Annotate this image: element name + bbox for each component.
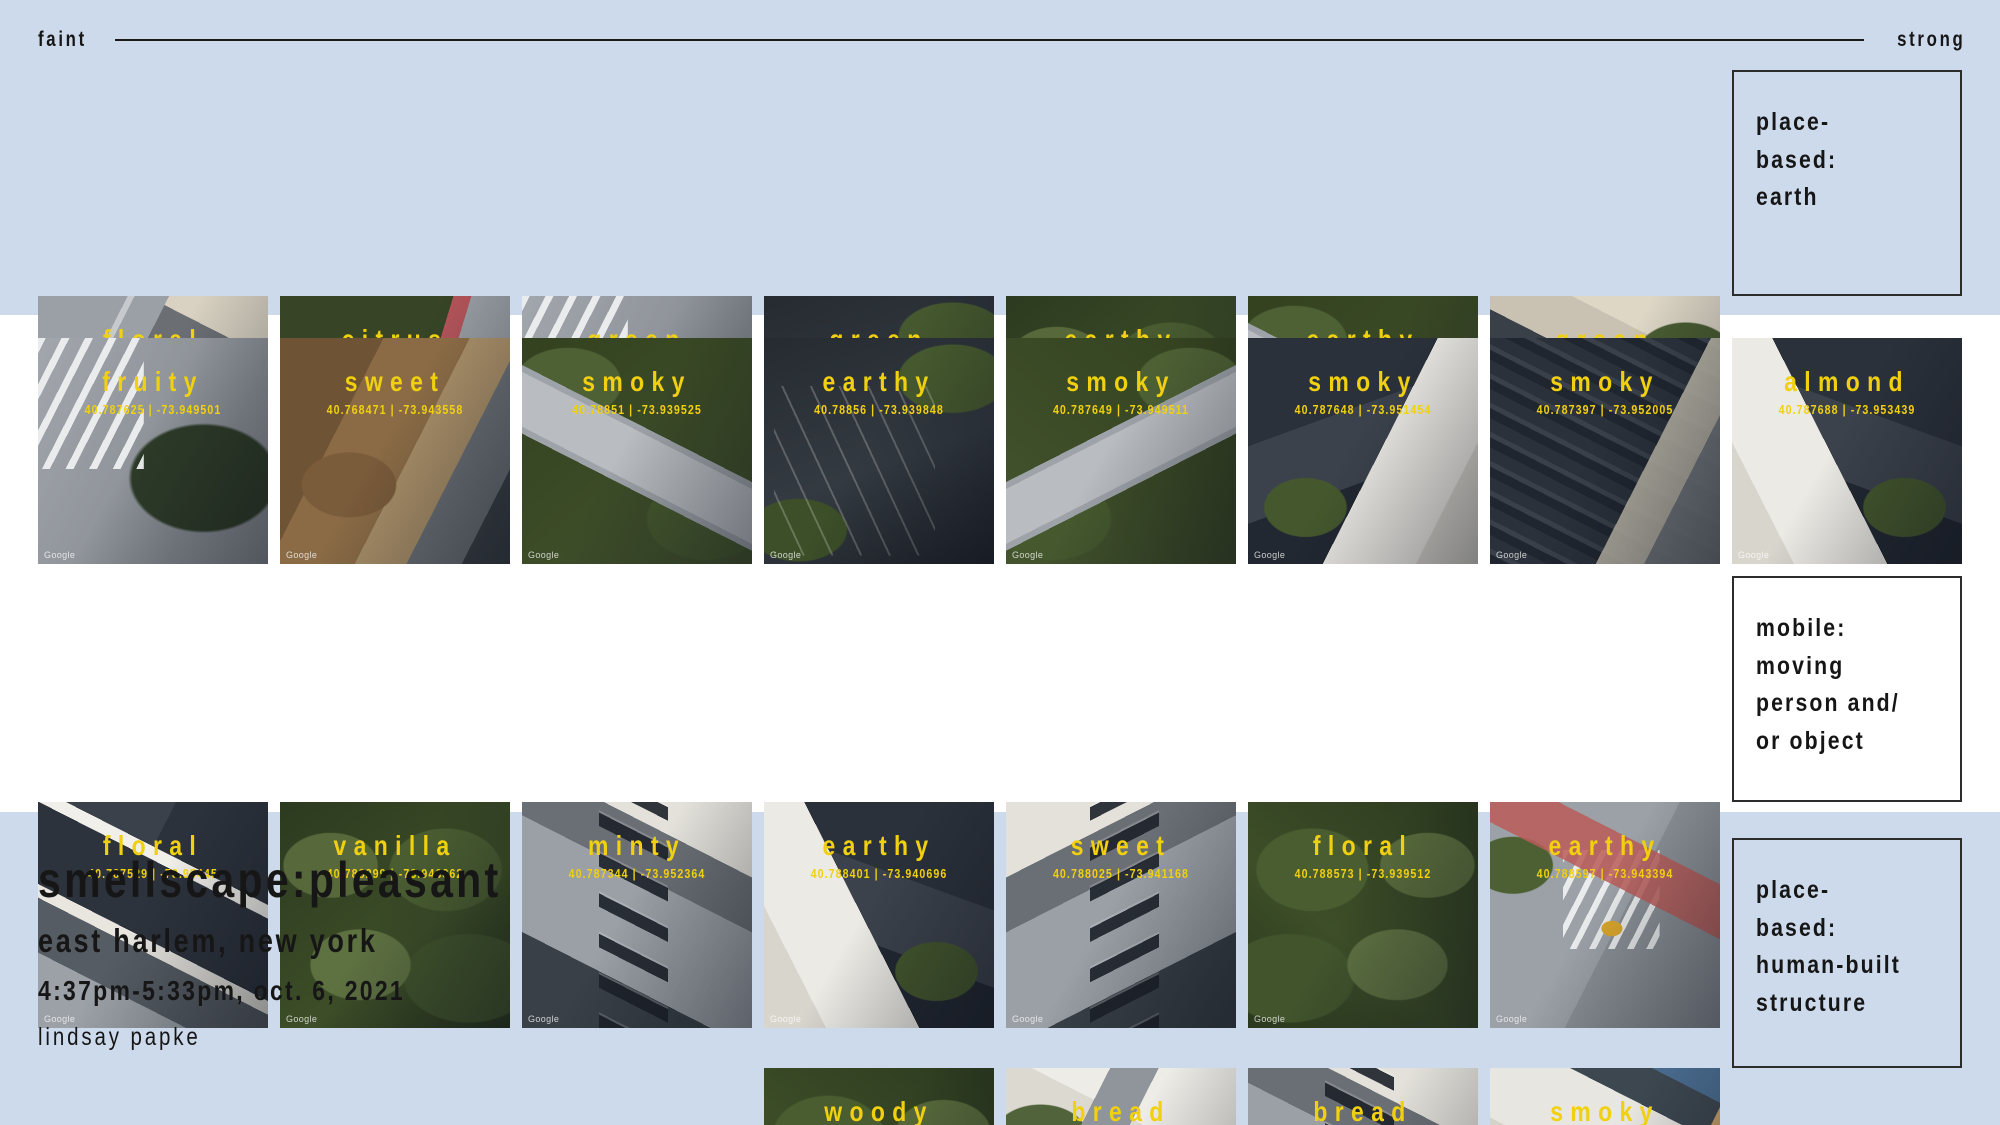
- smell-tile: smoky 40.787397 | -73.952005 Google: [1490, 338, 1720, 564]
- tile-caption: smoky 40.78761 | 40.78761: [1511, 1098, 1700, 1125]
- tile-caption: smoky 40.787648 | -73.951454: [1269, 368, 1458, 417]
- smell-tile: smoky 40.787648 | -73.951454 Google: [1248, 338, 1478, 564]
- scale-line: [115, 39, 1863, 41]
- tile-smell-label: smoky: [1511, 368, 1700, 396]
- smell-tile: fruity 40.787625 | -73.949501 Google: [38, 338, 268, 564]
- tile-caption: bread 40.787318 | -73.9483: [1027, 1098, 1216, 1125]
- tile-caption: bread 40.787628 | -73.952101: [1269, 1098, 1458, 1125]
- tile-coordinates: 40.787648 | -73.951454: [1269, 402, 1458, 417]
- tile-smell-label: earthy: [785, 368, 974, 396]
- google-watermark: Google: [1012, 550, 1043, 560]
- smell-tile: almond 40.787688 | -73.953439 Google: [1732, 338, 1962, 564]
- smell-tile: woody 40.78758 | -73.950807 Google: [764, 1068, 994, 1125]
- tile-caption: smoky 40.78851 | -73.939525: [543, 368, 732, 417]
- tile-coordinates: 40.787688 | -73.953439: [1753, 402, 1942, 417]
- category-box-structure: place-based: human-built structure: [1732, 838, 1962, 1068]
- google-watermark: Google: [44, 550, 75, 560]
- poster-title: smellscape:pleasant: [38, 855, 628, 905]
- smellscape-poster: faint strong place-based: earth floral 4…: [0, 0, 2000, 1125]
- tile-coordinates: 40.787649 | -73.949511: [1027, 402, 1216, 417]
- scale-label-strong: strong: [1897, 28, 1965, 52]
- tile-coordinates: 40.78851 | -73.939525: [543, 402, 732, 417]
- tile-smell-label: smoky: [1269, 368, 1458, 396]
- tile-caption: sweet 40.768471 | -73.943558: [301, 368, 490, 417]
- tile-coordinates: 40.787625 | -73.949501: [59, 402, 248, 417]
- poster-author: lindsay papke: [38, 1023, 628, 1052]
- google-watermark: Google: [528, 550, 559, 560]
- tile-caption: smoky 40.787397 | -73.952005: [1511, 368, 1700, 417]
- smell-tile: earthy 40.78856 | -73.939848 Google: [764, 338, 994, 564]
- tile-caption: earthy 40.78856 | -73.939848: [785, 368, 974, 417]
- smell-tile: smoky 40.787649 | -73.949511 Google: [1006, 338, 1236, 564]
- tile-smell-label: almond: [1753, 368, 1942, 396]
- tile-coordinates: 40.78856 | -73.939848: [785, 402, 974, 417]
- intensity-scale: faint strong: [38, 28, 1965, 52]
- category-label-mobile: mobile: moving person and/ or object: [1756, 610, 1911, 760]
- tile-caption: smoky 40.787649 | -73.949511: [1027, 368, 1216, 417]
- tile-smell-label: woody: [785, 1098, 974, 1125]
- scale-label-faint: faint: [38, 28, 87, 52]
- tile-smell-label: sweet: [301, 368, 490, 396]
- tile-smell-label: fruity: [59, 368, 248, 396]
- tile-coordinates: 40.787397 | -73.952005: [1511, 402, 1700, 417]
- tile-caption: almond 40.787688 | -73.953439: [1753, 368, 1942, 417]
- smell-tile: sweet 40.768471 | -73.943558 Google: [280, 338, 510, 564]
- category-box-mobile: mobile: moving person and/ or object: [1732, 576, 1962, 802]
- tile-row-2: fruity 40.787625 | -73.949501 Google swe…: [38, 338, 1962, 564]
- tile-smell-label: smoky: [543, 368, 732, 396]
- tile-smell-label: bread: [1269, 1098, 1458, 1125]
- smell-tile: bread 40.787318 | -73.9483 Google: [1006, 1068, 1236, 1125]
- google-watermark: Google: [770, 550, 801, 560]
- category-label-structure: place-based: human-built structure: [1756, 872, 1911, 1022]
- smell-tile: bread 40.787628 | -73.952101 Google: [1248, 1068, 1478, 1125]
- title-block: smellscape:pleasant east harlem, new yor…: [38, 855, 628, 1052]
- tile-caption: fruity 40.787625 | -73.949501: [59, 368, 248, 417]
- tile-coordinates: 40.768471 | -73.943558: [301, 402, 490, 417]
- poster-datetime: 4:37pm-5:33pm, oct. 6, 2021: [38, 975, 628, 1007]
- smell-tile: smoky 40.78761 | 40.78761 Google: [1490, 1068, 1720, 1125]
- category-box-earth: place-based: earth: [1732, 70, 1962, 296]
- google-watermark: Google: [1254, 550, 1285, 560]
- google-watermark: Google: [286, 550, 317, 560]
- tile-smell-label: smoky: [1511, 1098, 1700, 1125]
- category-label-earth: place-based: earth: [1756, 104, 1911, 217]
- tile-caption: woody 40.78758 | -73.950807: [785, 1098, 974, 1125]
- poster-subtitle: east harlem, new york: [38, 922, 628, 960]
- smell-tile: smoky 40.78851 | -73.939525 Google: [522, 338, 752, 564]
- tile-smell-label: smoky: [1027, 368, 1216, 396]
- tile-smell-label: bread: [1027, 1098, 1216, 1125]
- google-watermark: Google: [1738, 550, 1769, 560]
- google-watermark: Google: [1496, 550, 1527, 560]
